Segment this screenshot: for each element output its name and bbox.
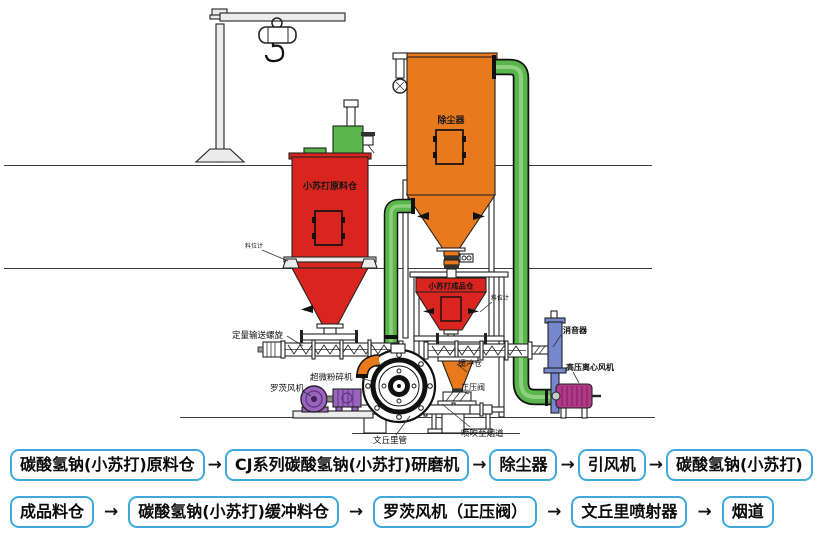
flow-arrow: → [208, 455, 222, 475]
hp-fan-label: 高压离心风机 [566, 362, 614, 372]
blower-motor [333, 389, 361, 407]
process-flow-row-1: 碳酸氢钠(小苏打)原料仓 → CJ系列碳酸氢钠(小苏打)研磨机 → 除尘器 → … [10, 449, 813, 481]
conveyor-motor [263, 342, 281, 357]
flow-box-venturi-injector: 文丘里喷射器 [571, 496, 687, 528]
flow-box-buffer-silo: 碳酸氢钠(小苏打)缓冲料仓 [128, 496, 339, 528]
flow-box-roots-blower: 罗茨风机（正压阀） [373, 496, 537, 528]
level-gauge-label-left: 料位计 [245, 242, 263, 250]
flow-arrow: → [560, 455, 574, 475]
level-gauge-label-right: 料位计 [491, 294, 509, 302]
venturi-label: 文丘里管 [373, 435, 407, 445]
raw-silo-label: 小苏打原料仓 [302, 180, 358, 192]
raw-material-silo: 小苏打原料仓 [283, 100, 377, 335]
flow-box-flue: 烟道 [722, 496, 774, 528]
crane-hook [266, 43, 283, 61]
flow-box-raw-silo: 碳酸氢钠(小苏打)原料仓 [10, 449, 205, 481]
product-screw-conveyor [424, 333, 548, 360]
silencer [548, 322, 562, 370]
electric-hoist [259, 27, 296, 43]
product-bin: 小苏打成品仓 [416, 278, 486, 339]
flow-arrow: → [104, 502, 118, 522]
flow-arrow: → [547, 502, 561, 522]
roots-blower-label: 罗茨风机 [270, 383, 305, 394]
dust-collector: 除尘器 [393, 53, 497, 278]
equipment-elevation-drawing: 除尘器 小苏打原料仓 [0, 0, 830, 445]
mill-label: 超微粉碎机 [310, 372, 353, 383]
flow-box-induced-draft-fan: 引风机 [578, 449, 646, 481]
buffer-bin-label: 缓冲仓 [458, 358, 482, 368]
flow-arrow: → [697, 502, 711, 522]
flow-box-sodium-bicarbonate: 碳酸氢钠(小苏打) [666, 449, 813, 481]
process-flow-row-2: 成品料仓 → 碳酸氢钠(小苏打)缓冲料仓 → 罗茨风机（正压阀） → 文丘里喷射… [10, 496, 774, 528]
roots-blower [293, 386, 373, 418]
silencer-label: 消音器 [563, 325, 588, 335]
dosing-screw-label: 定量输送螺旋 [232, 330, 284, 341]
process-diagram-page: 除尘器 小苏打原料仓 [0, 0, 830, 536]
flow-arrow: → [349, 502, 363, 522]
flow-box-product-silo: 成品料仓 [10, 496, 94, 528]
dust-collector-label: 除尘器 [437, 114, 465, 126]
flow-arrow: → [472, 455, 486, 475]
flow-box-mill: CJ系列碳酸氢钠(小苏打)研磨机 [225, 449, 469, 481]
product-bin-label: 小苏打成品仓 [429, 281, 474, 291]
flow-box-dust-collector: 除尘器 [489, 449, 557, 481]
positive-valve-label: 正压阀 [461, 383, 485, 392]
flow-arrow: → [649, 455, 663, 475]
blow-to-flue-label: 喷吹至烟道 [461, 428, 504, 439]
jib-crane [196, 9, 345, 162]
